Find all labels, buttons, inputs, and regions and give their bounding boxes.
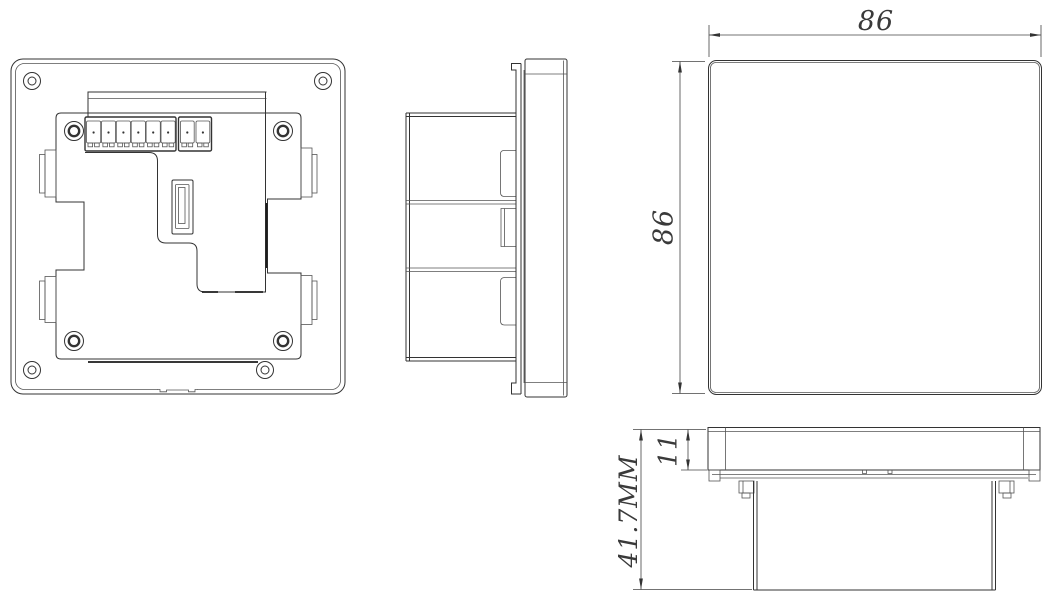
terminal-block-6pin bbox=[85, 117, 176, 151]
dim-label-panel-thickness: 11 bbox=[653, 433, 682, 467]
terminal-block-2pin bbox=[179, 117, 212, 151]
dim-label-front-width: 86 bbox=[858, 6, 894, 37]
panel-dimension-drawing: 86 86 bbox=[0, 0, 1053, 601]
drawing-background bbox=[0, 0, 1053, 601]
dim-label-total-depth: 41.7MM bbox=[614, 454, 643, 568]
dim-label-front-height: 86 bbox=[648, 209, 679, 245]
technical-drawing-canvas: 86 86 bbox=[0, 0, 1053, 601]
